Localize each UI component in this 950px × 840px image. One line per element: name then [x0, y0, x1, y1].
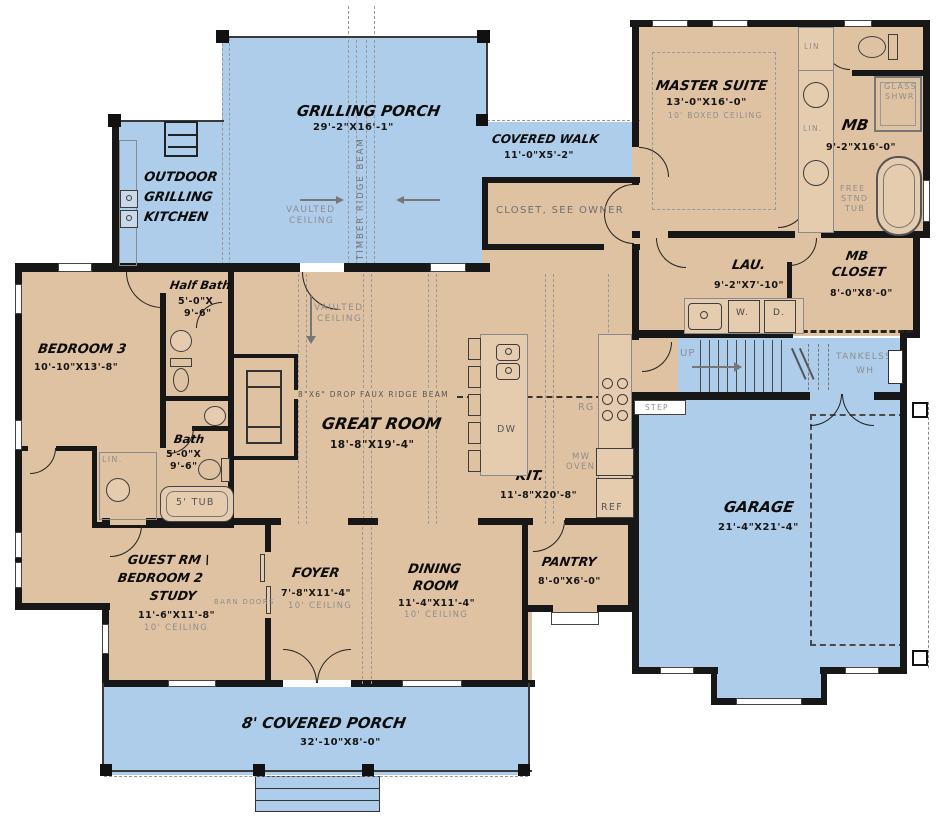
grill-line — [168, 146, 196, 148]
sink — [170, 330, 192, 352]
room-label: FOYER — [291, 566, 341, 581]
room-label: PANTRY — [541, 554, 598, 569]
left-lower-floor — [15, 520, 110, 608]
sink — [204, 406, 226, 426]
garage-overhang-dash — [928, 402, 929, 668]
room-label: ROOM — [412, 579, 459, 594]
ceiling-note: 10' CEILING — [404, 610, 468, 620]
barn-door-panel — [260, 554, 265, 582]
wall — [900, 392, 907, 674]
window — [660, 667, 694, 674]
garage-post — [912, 650, 928, 666]
beam-dash — [374, 40, 375, 264]
porch-edge — [222, 36, 488, 38]
dishwasher-label: DW — [497, 424, 516, 435]
tub-label: STND — [841, 194, 868, 203]
beam-arrow-head — [396, 196, 404, 204]
ceiling-dash — [371, 274, 372, 524]
ceiling-note: 10' CEILING — [288, 601, 352, 611]
toilet-bowl — [173, 368, 189, 392]
tub-inner — [883, 164, 915, 228]
porch-edge — [102, 770, 532, 772]
wall — [913, 238, 920, 334]
sink-drain — [505, 367, 512, 374]
window — [402, 680, 462, 687]
room-dims: 8'-0"X6'-0" — [538, 576, 601, 587]
microwave-label: OVEN — [566, 462, 595, 472]
roof-dash — [374, 6, 375, 34]
wall — [632, 244, 639, 340]
room-label: STUDY — [149, 588, 198, 603]
tub-label: 5' TUB — [176, 497, 215, 508]
porch-post — [216, 30, 229, 43]
window — [15, 562, 22, 588]
water-heater-label: TANKELSS — [836, 352, 892, 362]
room-dims: 32'-10"X8'-0" — [300, 737, 381, 748]
ceiling-arrow — [310, 296, 312, 336]
range-burner — [602, 410, 613, 421]
room-dims: 11'-4"X11'-4" — [398, 598, 475, 609]
linen-label: LIN. — [102, 455, 123, 464]
door-opening — [300, 263, 344, 272]
grill-icon — [164, 121, 198, 157]
porch-edge-dash — [222, 38, 223, 265]
sink-drain — [126, 195, 132, 201]
bar-seat — [468, 366, 481, 388]
wall — [482, 177, 640, 183]
room-dims: 21'-4"X21'-4" — [718, 522, 799, 533]
ceiling-note: CEILING — [317, 314, 362, 324]
wall — [112, 120, 119, 266]
porch-post — [100, 764, 112, 776]
room-dims: 11'-8"X20'-8" — [500, 490, 577, 501]
wall — [565, 518, 635, 525]
pantry-stoop — [551, 612, 599, 625]
window — [430, 263, 466, 272]
stair-tread-dash — [818, 344, 819, 390]
wall — [522, 518, 528, 686]
window — [58, 263, 92, 272]
porch-edge — [102, 683, 104, 772]
room-dims: 5'-0"X — [178, 296, 213, 307]
wall — [164, 396, 230, 401]
roof-dash — [348, 6, 349, 34]
fireplace-firebox — [246, 370, 282, 444]
porch-edge-dash — [229, 38, 230, 265]
stair-tread — [772, 340, 773, 392]
room-label: MB — [841, 116, 870, 134]
beam-label: 8"X6" DROP FAUX RIDGE BEAM — [294, 390, 453, 399]
wall — [15, 603, 110, 610]
ceiling-dash — [428, 274, 429, 524]
porch-steps — [255, 776, 380, 812]
porch-post — [362, 764, 374, 776]
ceiling-dash — [553, 274, 554, 524]
beam-dash — [348, 40, 349, 264]
stair-tread-dash — [828, 344, 829, 390]
fireplace-line — [248, 426, 282, 428]
room-dims: 9'-2"X7'-10" — [714, 280, 784, 291]
window — [652, 20, 688, 27]
bar-seat — [468, 338, 481, 360]
stair-tread — [745, 340, 746, 392]
toilet-tank — [221, 458, 230, 482]
beam-dash — [366, 40, 367, 264]
toilet-tank — [888, 34, 898, 60]
ceiling-dash — [436, 274, 437, 524]
barn-doors-label: BARN DOORS — [214, 598, 275, 606]
porch-step-line — [255, 800, 380, 801]
porch-front-dash — [104, 776, 528, 777]
room-dims: 29'-2"X16'-1" — [313, 122, 394, 133]
window — [102, 624, 109, 654]
window — [712, 20, 748, 27]
floor-plan: GRILLING PORCH 29'-2"X16'-1" VAULTED CEI… — [0, 0, 950, 840]
room-label: BEDROOM 3 — [37, 342, 128, 357]
room-label: LAU. — [731, 258, 767, 273]
ceiling-note: VAULTED — [286, 205, 335, 215]
window — [15, 420, 22, 450]
door-opening — [604, 244, 632, 250]
beam-label: TIMBER RIDGE BEAM — [356, 70, 366, 260]
porch-post — [253, 764, 265, 776]
stair-tread-dash — [808, 344, 809, 390]
linen-label: LIN — [804, 42, 820, 51]
room-dims: 5'-0"X — [166, 449, 201, 460]
linen-divider — [798, 70, 834, 71]
sink — [106, 478, 130, 502]
bar-seat — [468, 450, 481, 472]
room-dims: 8'-0"X8'-0" — [830, 288, 893, 299]
sink-drain — [700, 311, 708, 319]
step-label: STEP — [645, 403, 669, 412]
water-heater — [888, 350, 903, 384]
bar-seat — [468, 422, 481, 444]
stair-tread — [781, 340, 782, 392]
room-label: 8' COVERED PORCH — [241, 714, 408, 732]
bar-seat — [468, 394, 481, 416]
room-label: Bath — [173, 432, 205, 446]
wall — [628, 518, 635, 612]
ceiling-dash — [298, 274, 299, 524]
tub-label: FREE — [840, 184, 865, 193]
garage-post — [912, 402, 928, 418]
wall — [92, 446, 97, 528]
washer-label: W. — [736, 308, 749, 318]
window — [923, 180, 930, 222]
room-label: GREAT ROOM — [320, 414, 442, 433]
microwave-label: MW — [572, 452, 590, 462]
room-dims: 13'-0"X16'-0" — [666, 97, 747, 108]
range-burner — [602, 394, 613, 405]
room-label: GUEST RM \ — [127, 552, 211, 567]
toilet-bowl — [198, 459, 221, 480]
up-label: UP — [680, 348, 695, 359]
grilling-porch-floor — [222, 36, 488, 266]
room-label: BEDROOM 2 — [117, 570, 204, 585]
porch-edge — [528, 683, 530, 772]
room-label: DINING — [407, 562, 462, 577]
room-label: GRILLING PORCH — [296, 102, 442, 120]
ceiling-note: 10' CEILING — [144, 623, 208, 633]
water-heater-label: WH — [856, 366, 874, 376]
ceiling-arrow-head — [306, 336, 316, 344]
vanity-sink — [803, 82, 829, 108]
sink-drain — [126, 215, 132, 221]
toilet-bowl — [858, 36, 886, 58]
room-label: CLOSET — [831, 264, 887, 279]
up-arrow-head — [734, 362, 742, 372]
microwave-oven — [596, 448, 634, 476]
dryer-label: D. — [773, 308, 785, 318]
shower-label: SHWR — [885, 92, 915, 101]
room-label: MASTER SUITE — [655, 78, 769, 94]
column-dash — [362, 527, 363, 684]
window — [15, 532, 22, 558]
room-label: KITCHEN — [143, 210, 209, 225]
wall — [478, 518, 533, 525]
wall — [632, 20, 639, 147]
stair-tread — [763, 340, 764, 392]
closet-dash-wall — [793, 330, 913, 333]
fridge-label: REF — [601, 502, 623, 513]
tub-label: TUB — [845, 204, 865, 213]
range-burner — [617, 394, 628, 405]
porch-post — [477, 30, 490, 43]
room-label: GRILLING — [143, 190, 214, 205]
closet-label: CLOSET, SEE OWNER — [496, 205, 624, 216]
sink-drain — [505, 348, 512, 355]
room-dims: 11'-0"X5'-2" — [504, 150, 574, 161]
room-dims: 9'-6" — [170, 461, 198, 472]
room-label: MB — [845, 248, 869, 263]
door-opening — [553, 605, 597, 612]
grill-line — [168, 134, 196, 136]
range-burner — [602, 378, 613, 389]
shower-label: GLASS — [884, 82, 917, 91]
range-label: RG — [578, 402, 595, 413]
master-ceiling-outline — [652, 52, 776, 210]
ceiling-note: VAULTED — [314, 303, 363, 313]
column-dash — [371, 527, 372, 684]
room-dims: 11'-6"X11'-8" — [138, 610, 215, 621]
room-dims: 9'-6" — [184, 308, 212, 319]
room-label: Half Bath — [169, 278, 232, 292]
window — [845, 667, 879, 674]
window — [15, 284, 22, 314]
garage-slab-outline — [810, 414, 905, 646]
porch-edge — [486, 36, 488, 122]
window — [736, 698, 802, 705]
stair-tread — [754, 340, 755, 392]
up-arrow — [692, 366, 734, 368]
covered-walk-edge — [482, 120, 640, 121]
wall — [265, 518, 281, 525]
room-label: GARAGE — [723, 498, 795, 516]
toilet-tank — [170, 358, 192, 367]
porch-post — [108, 114, 121, 127]
fireplace-line — [248, 386, 282, 388]
ceiling-note: 10' BOXED CEILING — [668, 111, 763, 120]
beam-arrow-head — [336, 196, 344, 204]
wall — [482, 177, 488, 250]
room-dims: 7'-8"X11'-4" — [281, 588, 351, 599]
linen-label: LIN. — [803, 124, 823, 133]
wall — [348, 518, 378, 525]
window — [168, 680, 216, 687]
beam-arrow — [300, 199, 336, 201]
room-dims: 10'-10"X13'-8" — [34, 362, 118, 373]
vanity-sink — [803, 160, 829, 186]
ceiling-note: CEILING — [289, 216, 334, 226]
room-dims: 18'-8"X19'-4" — [330, 439, 415, 451]
porch-post — [518, 764, 530, 776]
room-dims: 9'-2"X16'-0" — [826, 142, 896, 153]
porch-step-line — [255, 788, 380, 789]
porch-post — [476, 114, 488, 126]
room-label: OUTDOOR — [143, 170, 219, 185]
beam-arrow — [404, 199, 440, 201]
room-label: COVERED WALK — [491, 132, 600, 146]
ceiling-dash — [545, 274, 546, 524]
ceiling-dash — [306, 274, 307, 524]
range-burner — [617, 410, 628, 421]
window — [844, 20, 872, 27]
wall — [160, 293, 166, 448]
door-opening — [640, 231, 668, 238]
range-burner — [617, 378, 628, 389]
